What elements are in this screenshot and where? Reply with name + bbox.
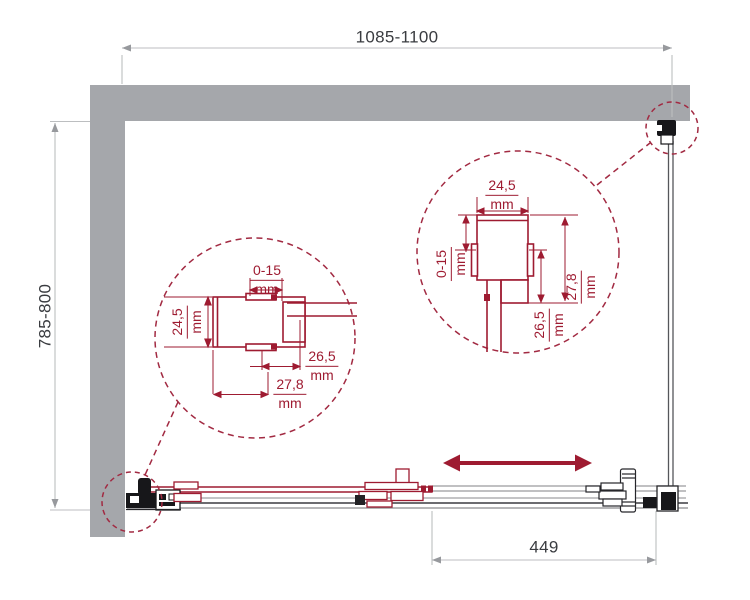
- detail-left-adjustment-label: 0-15 mm: [250, 263, 284, 297]
- leader-line-right: [597, 143, 650, 185]
- dim-unit: mm: [490, 196, 513, 213]
- detail-left-profile-depth-label: 24,5 mm: [170, 305, 204, 338]
- overall-width-label: 1085-1100: [356, 29, 439, 46]
- dim-value: 27,8: [564, 270, 582, 303]
- bracket-top-right: [653, 120, 676, 144]
- dim-value: 0-15: [250, 263, 284, 281]
- detail-right-profile-depth-label: 24,5 mm: [485, 178, 518, 212]
- dim-value: 26,5: [532, 308, 550, 341]
- profile-section-left: [213, 294, 357, 351]
- roller-mid: [355, 469, 423, 507]
- dim-unit: mm: [582, 275, 599, 298]
- wall-left: [90, 85, 125, 537]
- dim-unit: mm: [188, 310, 205, 333]
- overall-depth-label: 785-800: [37, 284, 54, 349]
- roller-right: [586, 469, 636, 512]
- detail-left-26-5-label: 26,5 mm: [305, 349, 338, 383]
- dim-value: 27,8: [273, 377, 306, 395]
- dim-unit: mm: [278, 395, 301, 412]
- door-opening-label: 449: [529, 539, 558, 556]
- left-dimension: [50, 122, 90, 511]
- dim-value: 26,5: [305, 349, 338, 367]
- dim-unit: mm: [550, 313, 567, 336]
- shower-enclosure-technical-drawing: 1085-1100 785-800 449 0-15 mm 24,5 mm 26…: [0, 0, 750, 600]
- dim-unit: mm: [310, 367, 333, 384]
- detail-right-27-8-label: 27,8 mm: [564, 270, 598, 303]
- leader-line-left: [145, 402, 178, 475]
- wall-top: [90, 85, 690, 121]
- profile-section-right: [472, 215, 534, 352]
- detail-right-adjustment-label: 0-15 mm: [434, 247, 468, 281]
- detail-right-26-5-label: 26,5 mm: [532, 308, 566, 341]
- side-glass-panel: [669, 141, 674, 496]
- wall-profile-bottom-left: [126, 478, 181, 510]
- dim-value: 0-15: [434, 247, 452, 281]
- dim-unit: mm: [255, 281, 278, 298]
- detail-left-27-8-label: 27,8 mm: [273, 377, 306, 411]
- dim-value: 24,5: [170, 305, 188, 338]
- slide-direction-arrow: [443, 455, 592, 472]
- drawing-canvas: [0, 0, 750, 600]
- dim-unit: mm: [452, 252, 469, 275]
- corner-bracket-right: [643, 486, 678, 511]
- dim-value: 24,5: [485, 178, 518, 196]
